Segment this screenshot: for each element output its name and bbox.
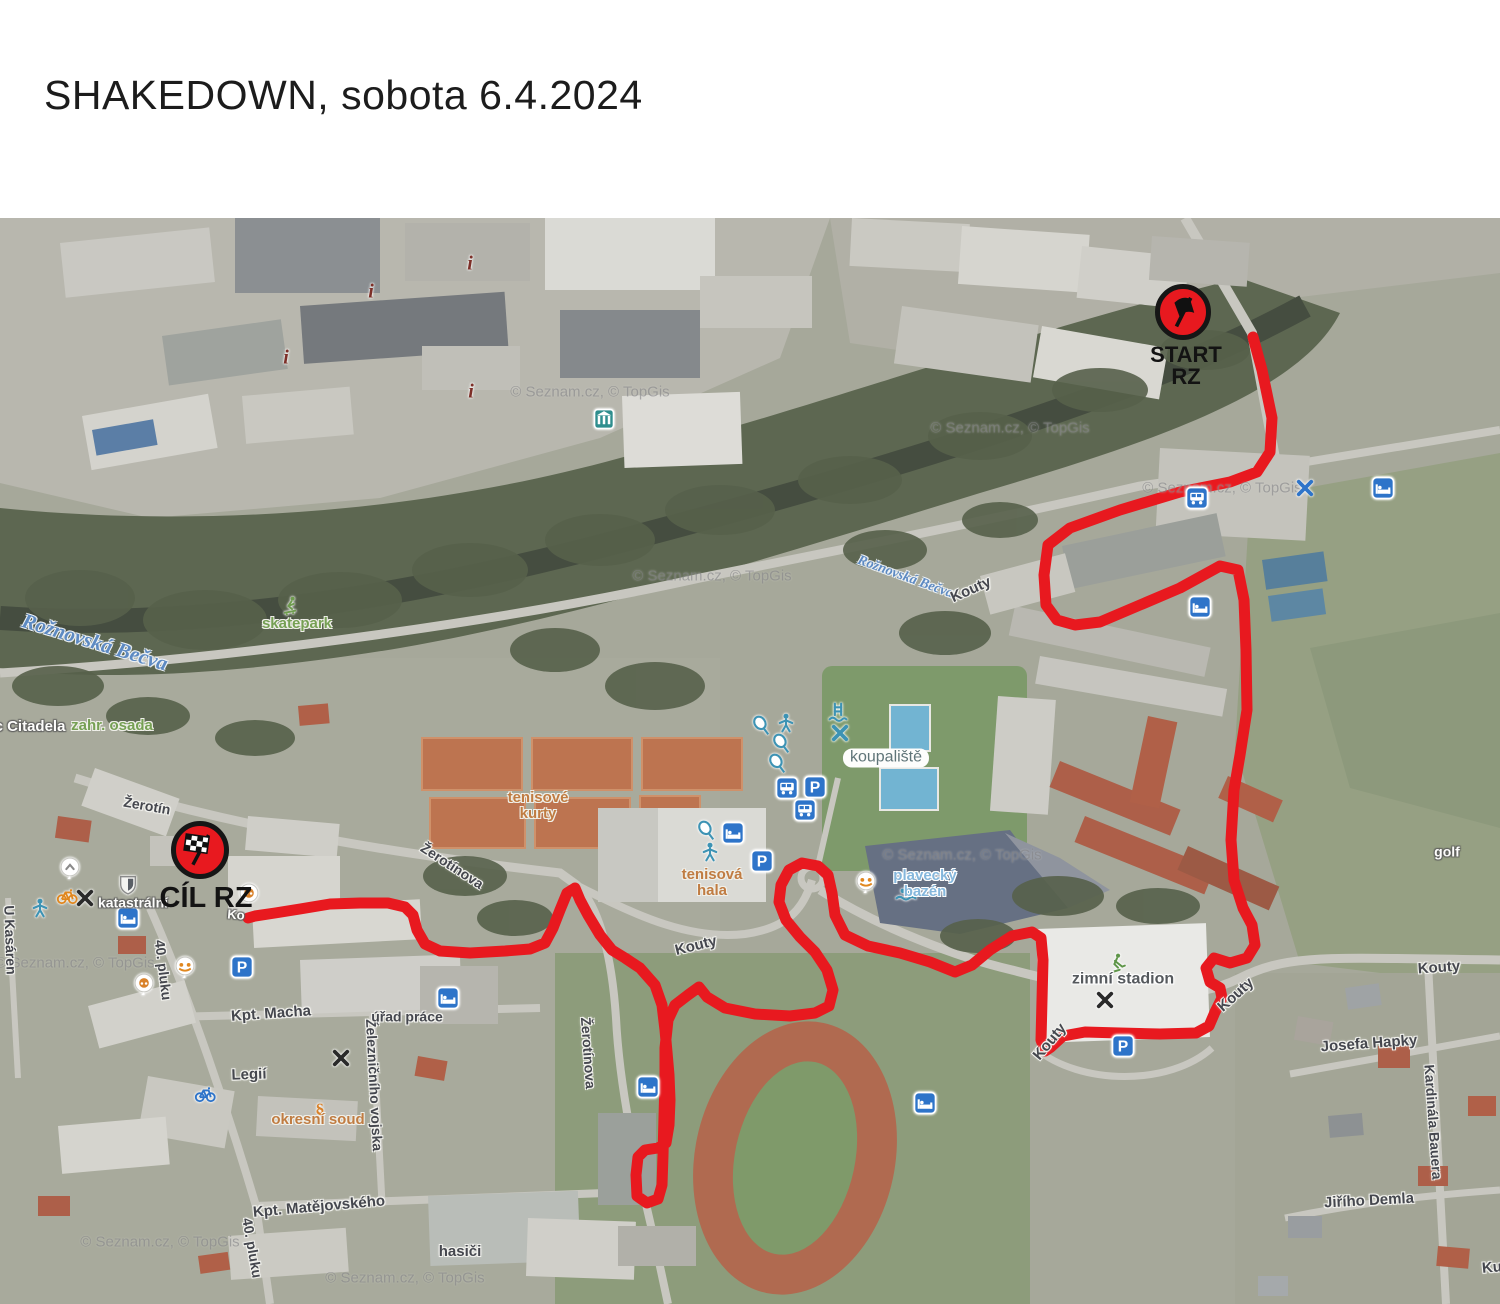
svg-text:P: P [237, 960, 247, 977]
parking-icon: P [231, 956, 254, 979]
black-flag-icon [1163, 292, 1203, 332]
parking-icon: P [1112, 1035, 1135, 1058]
bed-icon [1372, 477, 1395, 500]
svg-text:i: i [468, 380, 474, 402]
monument-icon: i [275, 346, 298, 369]
x-blue-icon [1294, 477, 1317, 500]
street-label: Kouty [1417, 959, 1461, 978]
street-label: U Kasáren [1, 905, 18, 975]
orange-label: tenisové kurty [508, 790, 569, 822]
map-attribution: © Seznam.cz, © TopGis [882, 847, 1041, 864]
playground-icon [855, 871, 878, 894]
map-attribution: © Seznam.cz, © TopGis [632, 568, 791, 585]
tennis-icon [696, 820, 719, 843]
white-label: golf [1434, 845, 1460, 860]
tennis-icon [767, 753, 790, 776]
skater-icon [279, 595, 302, 618]
person-icon [29, 897, 52, 920]
finish-marker [171, 821, 229, 879]
monument-icon: i [360, 280, 383, 303]
monument-icon: i [460, 380, 483, 403]
start-marker [1155, 284, 1211, 340]
svg-text:P: P [810, 780, 820, 797]
person-icon [775, 712, 798, 735]
route-path [248, 337, 1272, 1203]
person-icon [699, 841, 722, 864]
bed-icon [722, 822, 745, 845]
x-black-icon [330, 1047, 353, 1070]
svg-text:i: i [368, 280, 374, 302]
street-label: hasiči [439, 1244, 482, 1260]
green-label: skatepark [262, 616, 332, 632]
page-title: SHAKEDOWN, sobota 6.4.2024 [44, 72, 643, 119]
bed-icon [437, 987, 460, 1010]
start-marker-label: START RZ [1150, 344, 1222, 387]
green-label: zahr. osada [71, 718, 153, 734]
parking-icon: P [804, 776, 827, 799]
x-black-icon [1094, 989, 1117, 1012]
street-label: Legií [231, 1066, 267, 1083]
shield-icon [117, 873, 140, 896]
page: SHAKEDOWN, sobota 6.4.2024 [0, 0, 1500, 1304]
bus-icon [794, 799, 817, 822]
monument-icon: i [459, 252, 482, 275]
map-attribution: © Seznam.cz, © TopGis [1142, 480, 1301, 497]
teal-label: plavecký bazén [893, 868, 956, 900]
white-pin-icon [59, 857, 82, 880]
street-label: Ku [1481, 1259, 1500, 1277]
white-label: katastrální [98, 896, 168, 911]
bus-icon [776, 777, 799, 800]
map-attribution: © Seznam.cz, © TopGis [0, 955, 155, 972]
teal-building-icon [593, 408, 616, 431]
orange-label: tenisová hala [682, 867, 743, 899]
street-label: úřad práce [371, 1010, 443, 1025]
svg-text:P: P [757, 854, 767, 871]
bus-icon [1186, 487, 1209, 510]
svg-text:P: P [1118, 1039, 1128, 1056]
route-map: © Seznam.cz, © TopGis© Seznam.cz, © TopG… [0, 218, 1500, 1304]
playground-icon [174, 956, 197, 979]
map-attribution: © Seznam.cz, © TopGis [80, 1234, 239, 1251]
box-label: koupaliště [843, 749, 929, 768]
pretzel-icon [133, 973, 156, 996]
map-attribution: © Seznam.cz, © TopGis [930, 420, 1089, 437]
svg-text:i: i [283, 346, 289, 368]
parking-icon: P [751, 850, 774, 873]
checkered-flag-icon [179, 829, 221, 871]
bicycle-blue-icon [194, 1082, 217, 1105]
bed-icon [1189, 596, 1212, 619]
finish-marker-label: CÍL RZ [160, 884, 253, 912]
white-label: c Citadela [0, 719, 65, 735]
dark-label: zimní stadion [1072, 972, 1174, 989]
ladder-icon [827, 701, 850, 724]
svg-text:i: i [467, 252, 473, 274]
bed-icon [914, 1092, 937, 1115]
bed-icon [637, 1076, 660, 1099]
map-attribution: © Seznam.cz, © TopGis [325, 1270, 484, 1287]
x-black-icon [74, 887, 97, 910]
orange-label: okresní soud [271, 1112, 364, 1128]
x-teal-icon [829, 722, 852, 745]
map-attribution: © Seznam.cz, © TopGis [510, 384, 669, 401]
